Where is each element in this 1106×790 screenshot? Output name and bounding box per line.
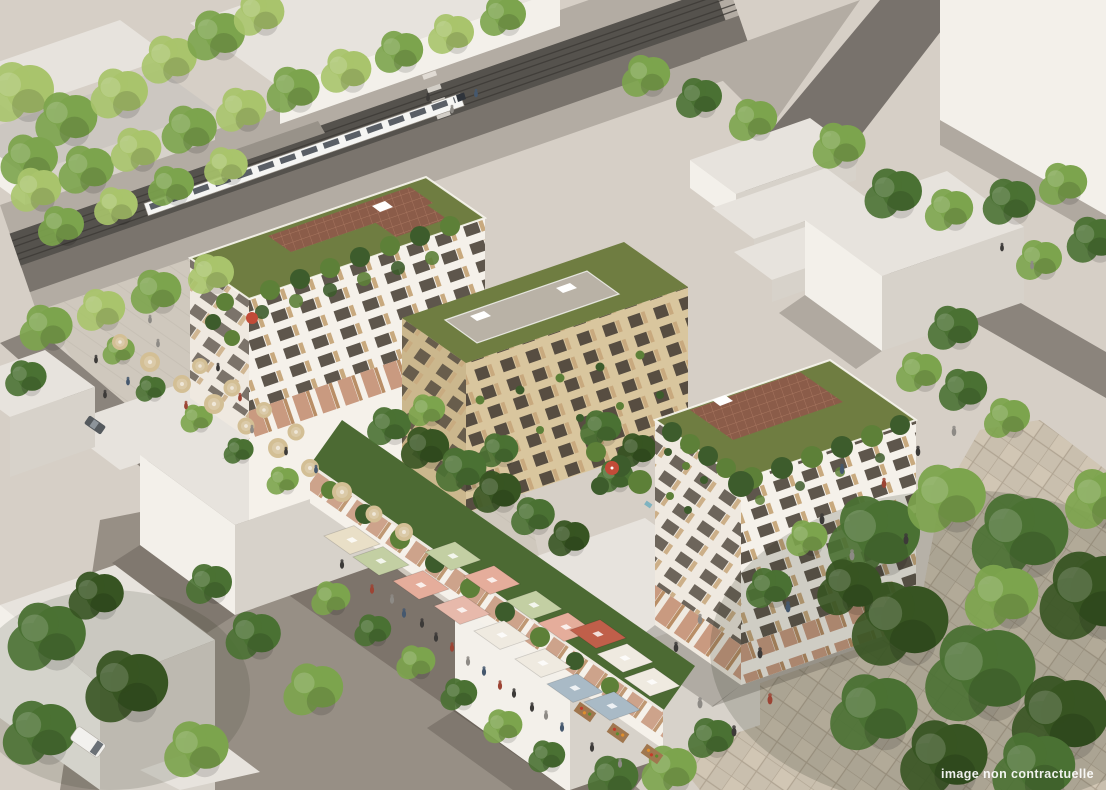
planter <box>664 448 672 456</box>
planter <box>410 226 430 246</box>
planter <box>875 453 885 463</box>
render-canvas: image non contractuelle <box>0 0 1106 790</box>
cafe-umbrella <box>140 352 160 372</box>
planter <box>391 261 405 275</box>
planter <box>323 283 337 297</box>
person <box>156 339 160 348</box>
person <box>1000 243 1004 252</box>
person <box>698 697 703 708</box>
cafe-umbrella <box>395 523 413 541</box>
planter <box>596 363 605 372</box>
person <box>402 608 406 617</box>
person <box>482 666 486 675</box>
person <box>94 355 98 364</box>
planter <box>536 426 544 434</box>
person <box>426 93 430 102</box>
person <box>340 559 344 568</box>
person <box>952 426 957 436</box>
person <box>618 758 622 767</box>
planter <box>636 351 645 360</box>
person <box>474 89 478 98</box>
person <box>758 647 763 658</box>
person <box>732 725 737 736</box>
planter <box>290 269 310 289</box>
planter <box>289 294 303 308</box>
planter <box>698 446 718 466</box>
planter <box>771 457 793 479</box>
person <box>698 614 703 624</box>
cafe-umbrella <box>204 394 224 414</box>
person <box>250 425 254 434</box>
person <box>103 390 107 399</box>
person <box>216 363 220 372</box>
planter <box>216 293 234 311</box>
person <box>786 601 791 612</box>
person <box>450 642 454 651</box>
planter <box>666 492 674 500</box>
planter <box>205 314 221 330</box>
planter <box>440 216 460 236</box>
person <box>420 618 424 627</box>
person <box>126 377 130 386</box>
planter <box>700 476 708 484</box>
planter <box>861 425 883 447</box>
planter <box>831 436 853 458</box>
person <box>370 584 374 593</box>
person <box>882 478 887 488</box>
planter <box>224 330 240 346</box>
planter <box>586 442 606 462</box>
planter <box>357 272 371 286</box>
person <box>498 680 502 689</box>
terrace-parasol-red <box>246 312 258 324</box>
person <box>904 533 909 544</box>
person <box>450 105 454 114</box>
hedge <box>530 627 550 647</box>
planter <box>476 396 485 405</box>
cafe-umbrella <box>288 424 305 441</box>
planter <box>795 481 805 491</box>
person <box>434 632 438 641</box>
person <box>530 702 534 711</box>
planter <box>516 386 525 395</box>
person <box>544 710 548 719</box>
person <box>768 693 773 704</box>
person <box>560 722 564 731</box>
planter <box>425 251 439 265</box>
hedge <box>601 677 619 695</box>
planter <box>680 434 700 454</box>
planter <box>662 422 682 442</box>
cafe-umbrella <box>112 334 128 350</box>
cafe-umbrella <box>173 375 191 393</box>
person <box>850 549 855 560</box>
person <box>820 513 825 524</box>
planter <box>591 477 609 495</box>
person <box>148 315 152 324</box>
person <box>1030 261 1034 270</box>
planter <box>576 414 584 422</box>
planter <box>890 415 910 435</box>
architectural-aerial-rendering: image non contractuelle <box>0 0 1106 790</box>
planter <box>350 247 370 267</box>
planter <box>755 495 765 505</box>
person <box>674 642 679 652</box>
planter <box>628 470 652 494</box>
person <box>590 742 594 751</box>
person <box>512 688 516 697</box>
person <box>314 465 318 474</box>
person <box>840 464 845 474</box>
person <box>238 393 242 402</box>
planter <box>682 462 690 470</box>
planter <box>801 446 823 468</box>
cafe-umbrella <box>192 358 208 374</box>
planter <box>320 258 340 278</box>
cafe-umbrella <box>224 380 241 397</box>
planter <box>684 506 692 514</box>
cafe-umbrella <box>332 482 352 502</box>
planter <box>656 391 664 399</box>
planter <box>380 236 400 256</box>
cafe-umbrella <box>366 506 383 523</box>
planter <box>728 471 754 497</box>
planter <box>616 402 624 410</box>
person <box>466 656 470 665</box>
person <box>184 401 188 410</box>
planter <box>260 280 280 300</box>
person <box>916 446 921 456</box>
cafe-umbrella <box>256 402 272 418</box>
watermark-text: image non contractuelle <box>941 767 1094 781</box>
parasol-top <box>611 467 614 470</box>
person <box>390 594 394 603</box>
planter <box>556 374 565 383</box>
person <box>284 447 288 456</box>
